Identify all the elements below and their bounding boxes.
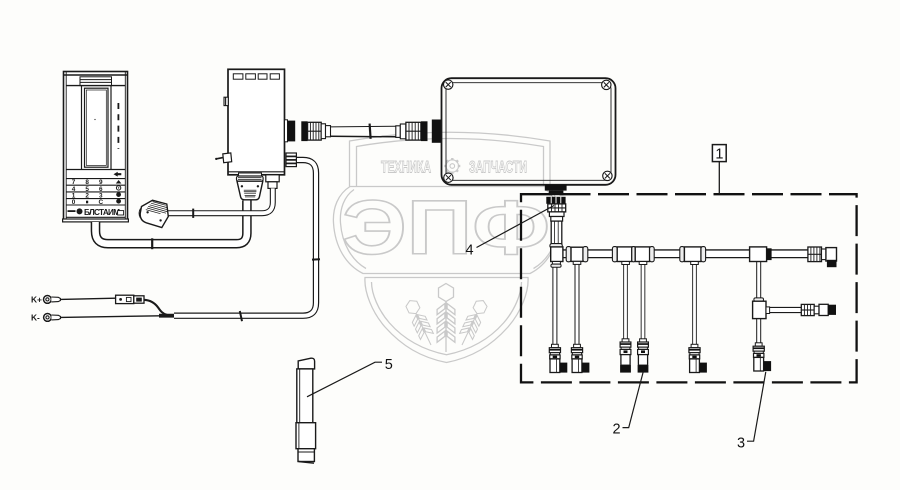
svg-text:ТЕХНИКА: ТЕХНИКА xyxy=(381,158,431,177)
svg-text:2: 2 xyxy=(85,193,89,200)
svg-text:1: 1 xyxy=(715,146,723,162)
svg-text:ЗАПЧАСТИ: ЗАПЧАСТИ xyxy=(469,158,527,177)
svg-text:C: C xyxy=(98,199,103,206)
svg-text:2: 2 xyxy=(612,421,620,437)
svg-text:БЛСТАИМ: БЛСТАИМ xyxy=(84,208,120,217)
svg-text:4: 4 xyxy=(465,243,473,259)
svg-text:5: 5 xyxy=(385,357,393,373)
svg-text:ЭПФ: ЭПФ xyxy=(342,185,550,271)
svg-text:0: 0 xyxy=(72,199,76,206)
svg-text:K-: K- xyxy=(31,312,40,322)
svg-text:K+: K+ xyxy=(31,295,42,305)
svg-text:3: 3 xyxy=(737,436,745,452)
